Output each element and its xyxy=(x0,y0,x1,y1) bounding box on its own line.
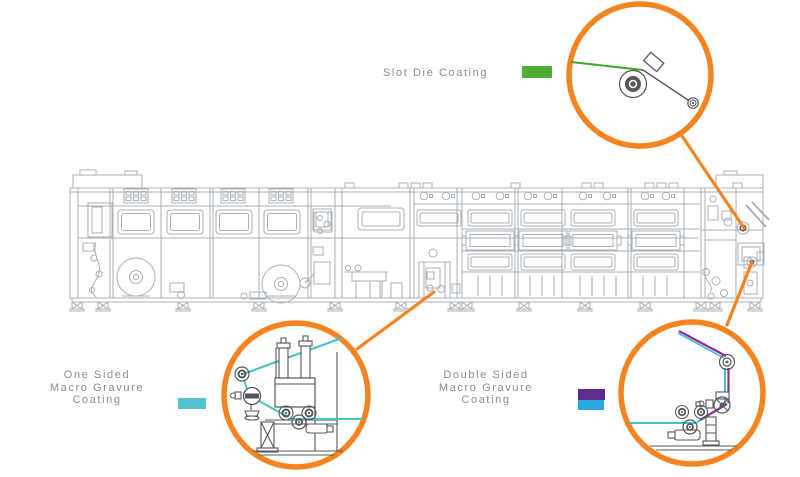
double-sided-label-line1: Double Sided xyxy=(426,369,546,382)
one-sided-label: One Sided Macro Gravure Coating xyxy=(37,369,157,407)
double-sided-label-line3: Coating xyxy=(426,394,546,407)
one-sided-label-line3: Coating xyxy=(37,394,157,407)
slot-die-connector xyxy=(682,136,744,228)
double-sided-swatch-top xyxy=(578,389,605,400)
callout-one-sided xyxy=(224,323,368,467)
double-sided-circle xyxy=(621,322,763,464)
slot-die-swatch xyxy=(522,66,552,78)
double-sided-label-line2: Macro Gravure xyxy=(426,382,546,395)
one-sided-label-line1: One Sided xyxy=(37,369,157,382)
coating-machine-diagram: Slot Die Coating One Sided Macro Gravure… xyxy=(0,0,800,477)
one-sided-label-line2: Macro Gravure xyxy=(37,382,157,395)
callout-double-sided xyxy=(621,322,763,464)
double-sided-swatch-bottom xyxy=(578,400,604,410)
callout-slot-die xyxy=(569,4,711,146)
slot-die-circle xyxy=(569,4,711,146)
slot-die-label: Slot Die Coating xyxy=(383,67,488,80)
one-sided-swatch xyxy=(178,398,206,409)
machine-illustration xyxy=(70,170,769,311)
callout-connector-lines xyxy=(357,136,752,349)
double-sided-label: Double Sided Macro Gravure Coating xyxy=(426,369,546,407)
one-sided-connector xyxy=(357,292,434,349)
